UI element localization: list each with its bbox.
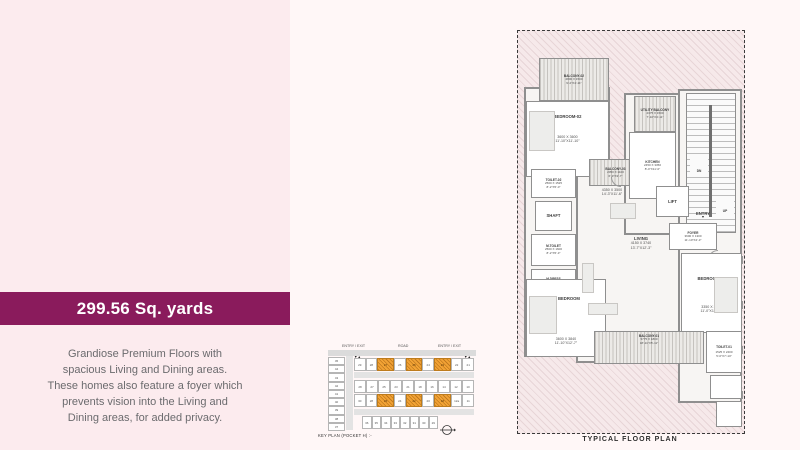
plot-cell: 26: [394, 358, 406, 371]
plot-cell: 25: [406, 358, 423, 371]
plot-cell: 39: [328, 406, 345, 414]
room-dim-ft: 8'-2"X5'-0": [547, 186, 561, 190]
plot-row: 3028262422201812a11: [354, 394, 474, 407]
plot-cell: 33: [391, 416, 401, 429]
bed-icon: [529, 296, 557, 334]
plot-cell: 37: [328, 423, 345, 431]
entry-exit-label-right: ENTRY / EXIT: [438, 344, 461, 348]
room-name: UP: [723, 209, 727, 213]
plot-cell: 35: [372, 416, 382, 429]
area-banner: 299.56 Sq. yards: [0, 292, 290, 325]
plot-cell: 27: [366, 380, 378, 393]
room-name: LIFT: [668, 199, 677, 204]
plot-cell: 31: [410, 416, 420, 429]
plot-cell: 18: [414, 380, 426, 393]
entry-exit-label-left: ENTRY / EXIT: [342, 344, 365, 348]
bed-icon: [714, 277, 738, 313]
bed-icon: [529, 111, 555, 151]
entry-arrow-icon: ▼: [686, 216, 720, 220]
plot-cell: 32: [400, 416, 410, 429]
plot-cell: 40: [328, 398, 345, 406]
inner-road: [354, 409, 474, 415]
plot-cell: 11: [462, 394, 474, 407]
plot-row: 28272523211816141210: [354, 380, 474, 393]
plot-cell: 36: [362, 416, 372, 429]
plot-cell: 45: [328, 357, 345, 365]
plot-cell: 26: [377, 394, 394, 407]
room-balcony-02: BALCONY-02 2800 X 1500 9'-2"X4'-11": [539, 58, 609, 101]
room-name: DN: [697, 169, 702, 173]
description-line: spacious Living and Dining areas.: [15, 363, 275, 379]
room-dim-ft: 8'-2"X5'-3": [547, 252, 561, 256]
plot-cell: 29: [354, 358, 366, 371]
room-label: TOILET-02 2500 X 1525 8'-2"X5'-0": [532, 170, 575, 197]
plot-cell: 12: [450, 380, 462, 393]
area-value: 299.56 Sq. yards: [77, 299, 213, 319]
plot-cell: 27: [377, 358, 394, 371]
plot-cell: 21: [462, 358, 474, 371]
description-line: Grandiose Premium Floors with: [15, 347, 275, 363]
plot-cell: 42: [328, 382, 345, 390]
plot-cell: 28: [366, 358, 378, 371]
plot-cell: 23: [390, 380, 402, 393]
plot-cell: 30: [419, 416, 429, 429]
stair-rail: [709, 105, 712, 217]
room-m-toilet: M.TOILET 2500 X 1600 8'-2"X5'-3": [531, 234, 576, 266]
keyplan-left-column: 454443424140393837: [328, 357, 345, 431]
entry-label: ENTRY ▼: [686, 211, 720, 220]
room-foyer: FOYER 3600 X 1300 11'-10"X4'-3": [669, 223, 717, 250]
plot-cell: 24: [394, 394, 406, 407]
description-line: prevents vision into the Living and: [15, 395, 275, 411]
plot-cell: 29: [429, 416, 439, 429]
plot-cell: 44: [328, 365, 345, 373]
room-label: M.TOILET 2500 X 1600 8'-2"X5'-3": [532, 235, 575, 265]
floor-plan-caption: TYPICAL FLOOR PLAN: [517, 436, 743, 443]
plot-cell: 21: [402, 380, 414, 393]
inner-road: [354, 372, 474, 378]
plot-cell: 34: [381, 416, 391, 429]
service-box: [710, 375, 742, 399]
floor-plan: BALCONY-02 2800 X 1500 9'-2"X4'-11" BEDR…: [517, 30, 745, 434]
room-label: FOYER 3600 X 1300 11'-10"X4'-3": [670, 224, 716, 249]
room-dim-ft: 9'-2"X4'-11": [566, 82, 581, 86]
room-label: UTILITY BALCONY 2375 X 1500 7'-10"X4'-11…: [635, 97, 675, 131]
room-label: BALCONY-01 5775 X 1800 18'-11"X5'-11": [618, 334, 680, 346]
road-label: ROAD: [398, 344, 408, 348]
plot-cell: 41: [328, 390, 345, 398]
plot-cell: 16: [426, 380, 438, 393]
plot-cell: 22: [451, 358, 463, 371]
key-plan: ENTRY / EXIT ROAD ENTRY / EXIT ▼▲ ▼▲ 454…: [318, 344, 476, 446]
room-dim-ft: 13'-7"X12'-3": [606, 246, 676, 250]
room-dim-ft: 11'-10"X4'-3": [684, 239, 701, 243]
description-block: Grandiose Premium Floors with spacious L…: [15, 347, 275, 427]
plot-cell: 22: [406, 394, 423, 407]
plot-cell: 25: [378, 380, 390, 393]
plot-cell: 14: [438, 380, 450, 393]
plot-cell: 10: [462, 380, 474, 393]
service-box: [716, 401, 742, 427]
plot-cell: 38: [328, 415, 345, 423]
plot-cell: 28: [366, 394, 378, 407]
plot-cell: 30: [354, 394, 366, 407]
room-lift: LIFT: [656, 186, 689, 217]
sofa-icon: [582, 263, 594, 293]
plot-cell: 24: [422, 358, 434, 371]
plot-row: 292827262524232221: [354, 358, 474, 371]
room-name: TOILET-01: [716, 345, 732, 349]
room-label: BALCONY-02 2800 X 1500 9'-2"X4'-11": [540, 59, 608, 100]
room-dim-ft: 18'-11"X5'-11": [618, 342, 680, 346]
keyplan-title: KEY PLAN (POCKET H) :-: [318, 433, 372, 438]
description-line: These homes also feature a foyer which: [15, 379, 275, 395]
dining-table-icon: [610, 203, 636, 219]
stairs-down-label: DN: [690, 159, 708, 177]
room-name: SHAFT: [547, 213, 561, 218]
plot-cell: 23: [434, 358, 451, 371]
room-shaft: SHAFT: [535, 201, 572, 231]
plot-cell: 12a: [451, 394, 463, 407]
page: 299.56 Sq. yards Grandiose Premium Floor…: [0, 0, 800, 450]
left-panel: 299.56 Sq. yards Grandiose Premium Floor…: [0, 0, 290, 450]
plot-row: 3635343332313029: [362, 416, 438, 429]
room-dim-ft: 5'-0"X7'-10": [706, 355, 742, 359]
plot-cell: 28: [354, 380, 366, 393]
room-name: BEDROOM-02: [554, 114, 582, 119]
description-line: Dining areas, for added privacy.: [15, 411, 275, 427]
room-label: SHAFT: [536, 202, 571, 230]
room-utility-balcony: UTILITY BALCONY 2375 X 1500 7'-10"X4'-11…: [634, 96, 676, 132]
room-toilet-02: TOILET-02 2500 X 1525 8'-2"X5'-0": [531, 169, 576, 198]
room-label: 1525 X 2400 5'-0"X7'-10": [706, 351, 742, 359]
living-label: LIVING 4150 X 3740 13'-7"X12'-3": [606, 236, 676, 250]
room-dim-ft: 7'-10"X4'-11": [646, 116, 663, 120]
side-road: [346, 356, 353, 430]
plot-cell: 43: [328, 373, 345, 381]
room-label: LIFT: [657, 187, 688, 216]
room-dim-ft: 8'-0"X11'-0": [645, 168, 660, 172]
sofa-icon: [588, 303, 618, 315]
plot-cell: 18: [434, 394, 451, 407]
plot-cell: 20: [422, 394, 434, 407]
compass-icon: [440, 423, 456, 437]
